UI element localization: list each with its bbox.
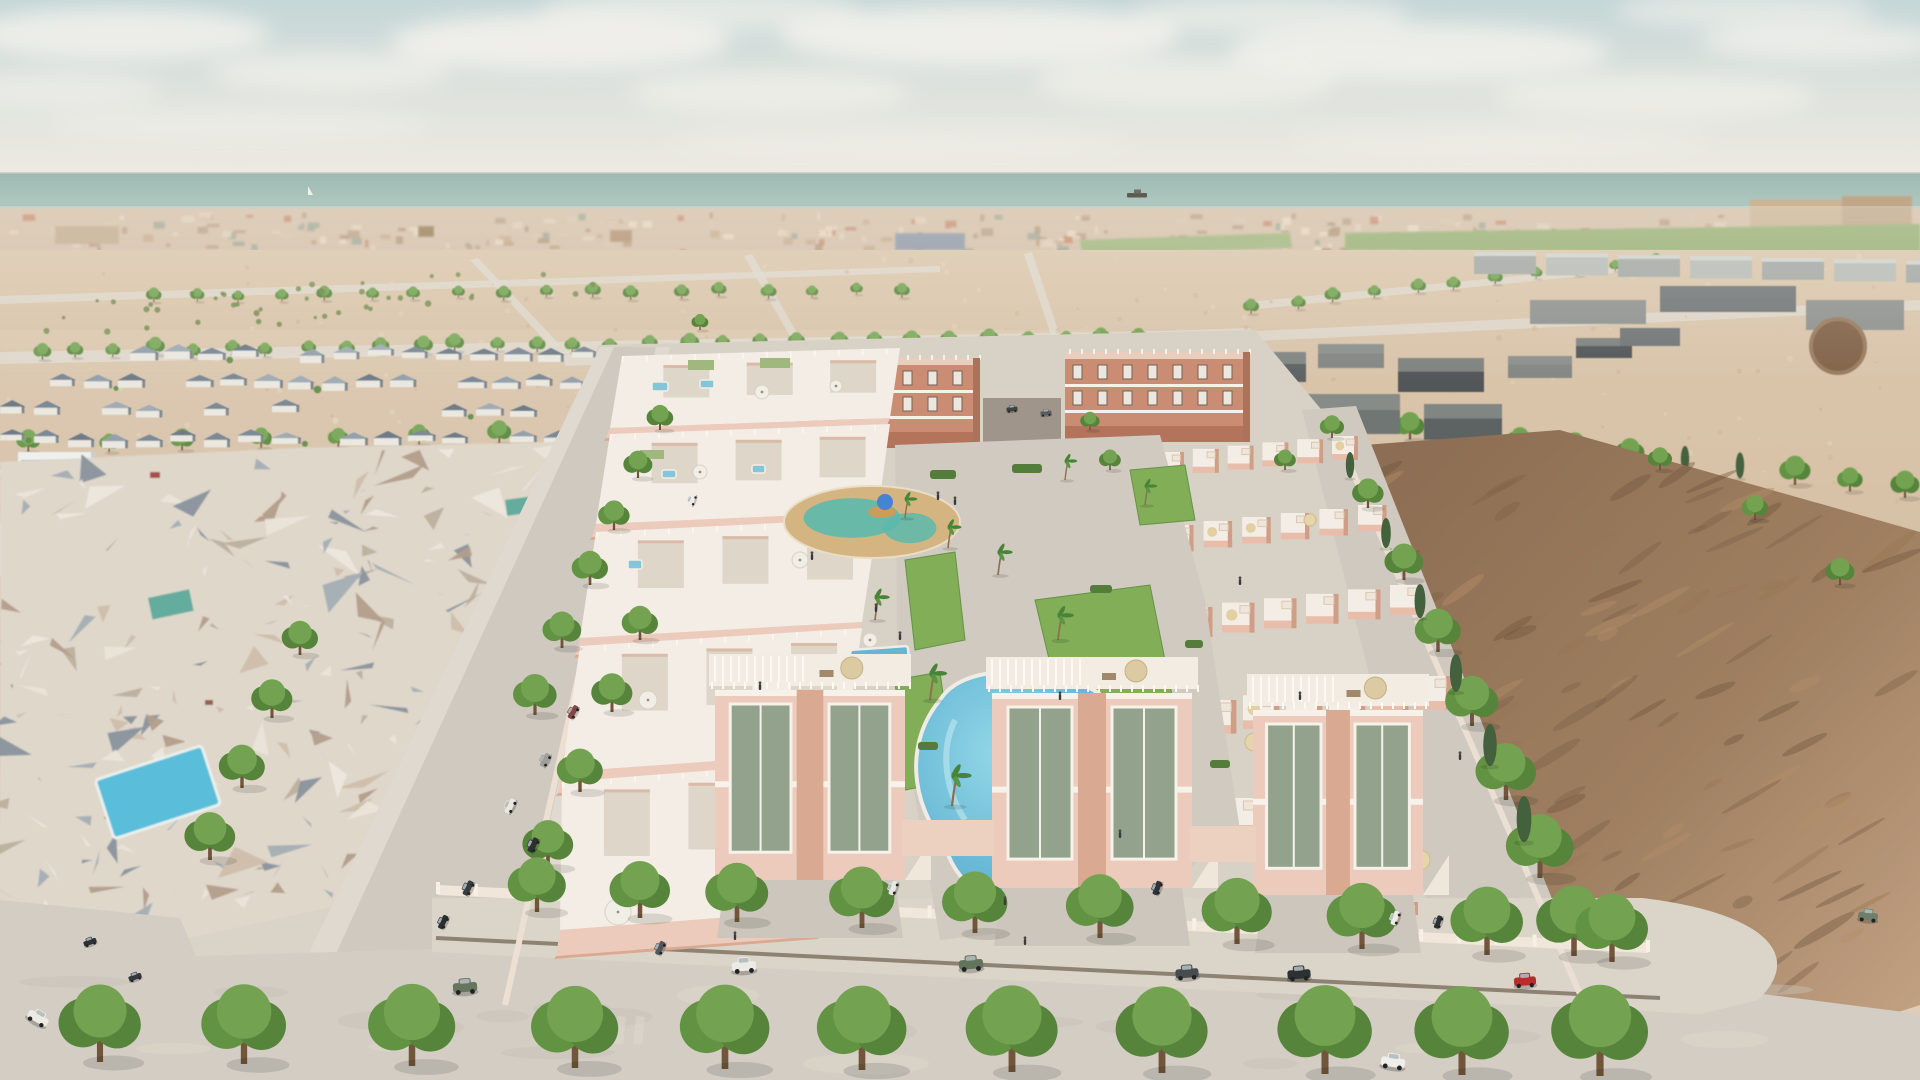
aerial-render xyxy=(0,0,1920,1080)
scene-svg xyxy=(0,0,1920,1080)
warm-tone-overlay xyxy=(0,0,1920,1080)
